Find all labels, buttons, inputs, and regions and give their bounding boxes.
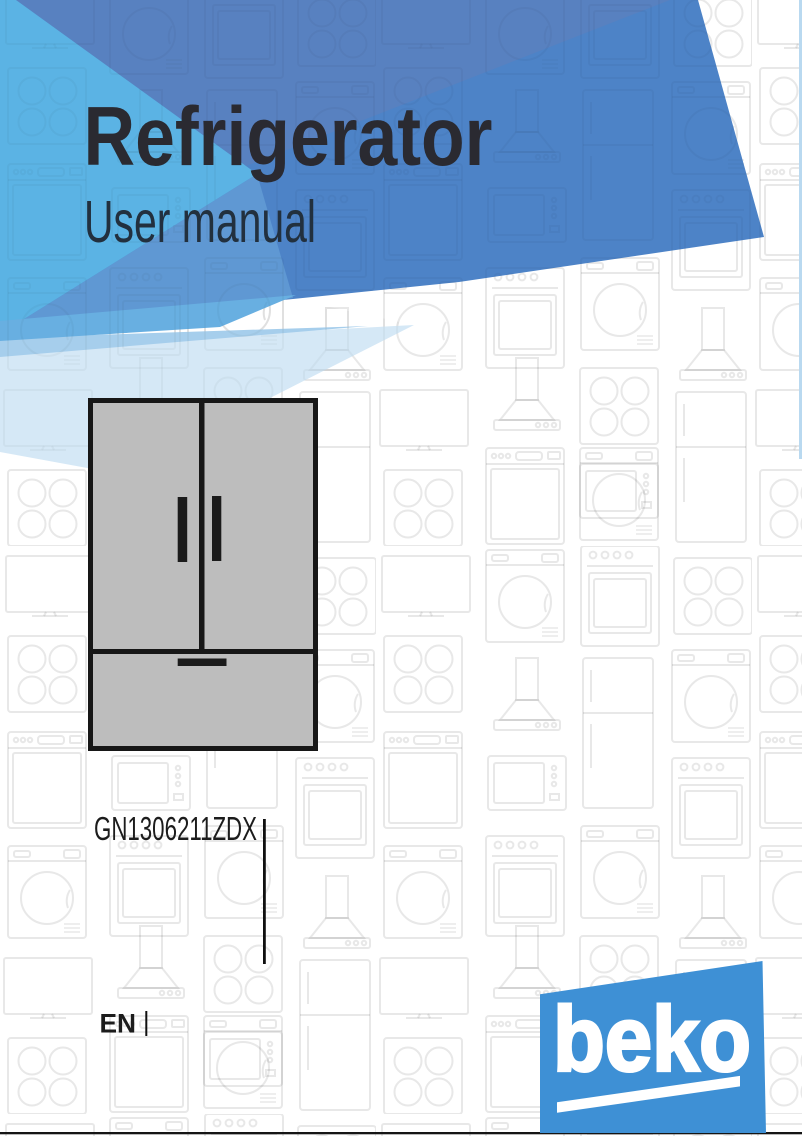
svg-text:User manual: User manual	[84, 189, 316, 255]
svg-text:Refrigerator: Refrigerator	[84, 89, 493, 183]
svg-text:beko: beko	[553, 989, 751, 1091]
svg-text:GN1306211ZDX: GN1306211ZDX	[94, 811, 257, 848]
svg-text:EN: EN	[100, 1008, 137, 1039]
